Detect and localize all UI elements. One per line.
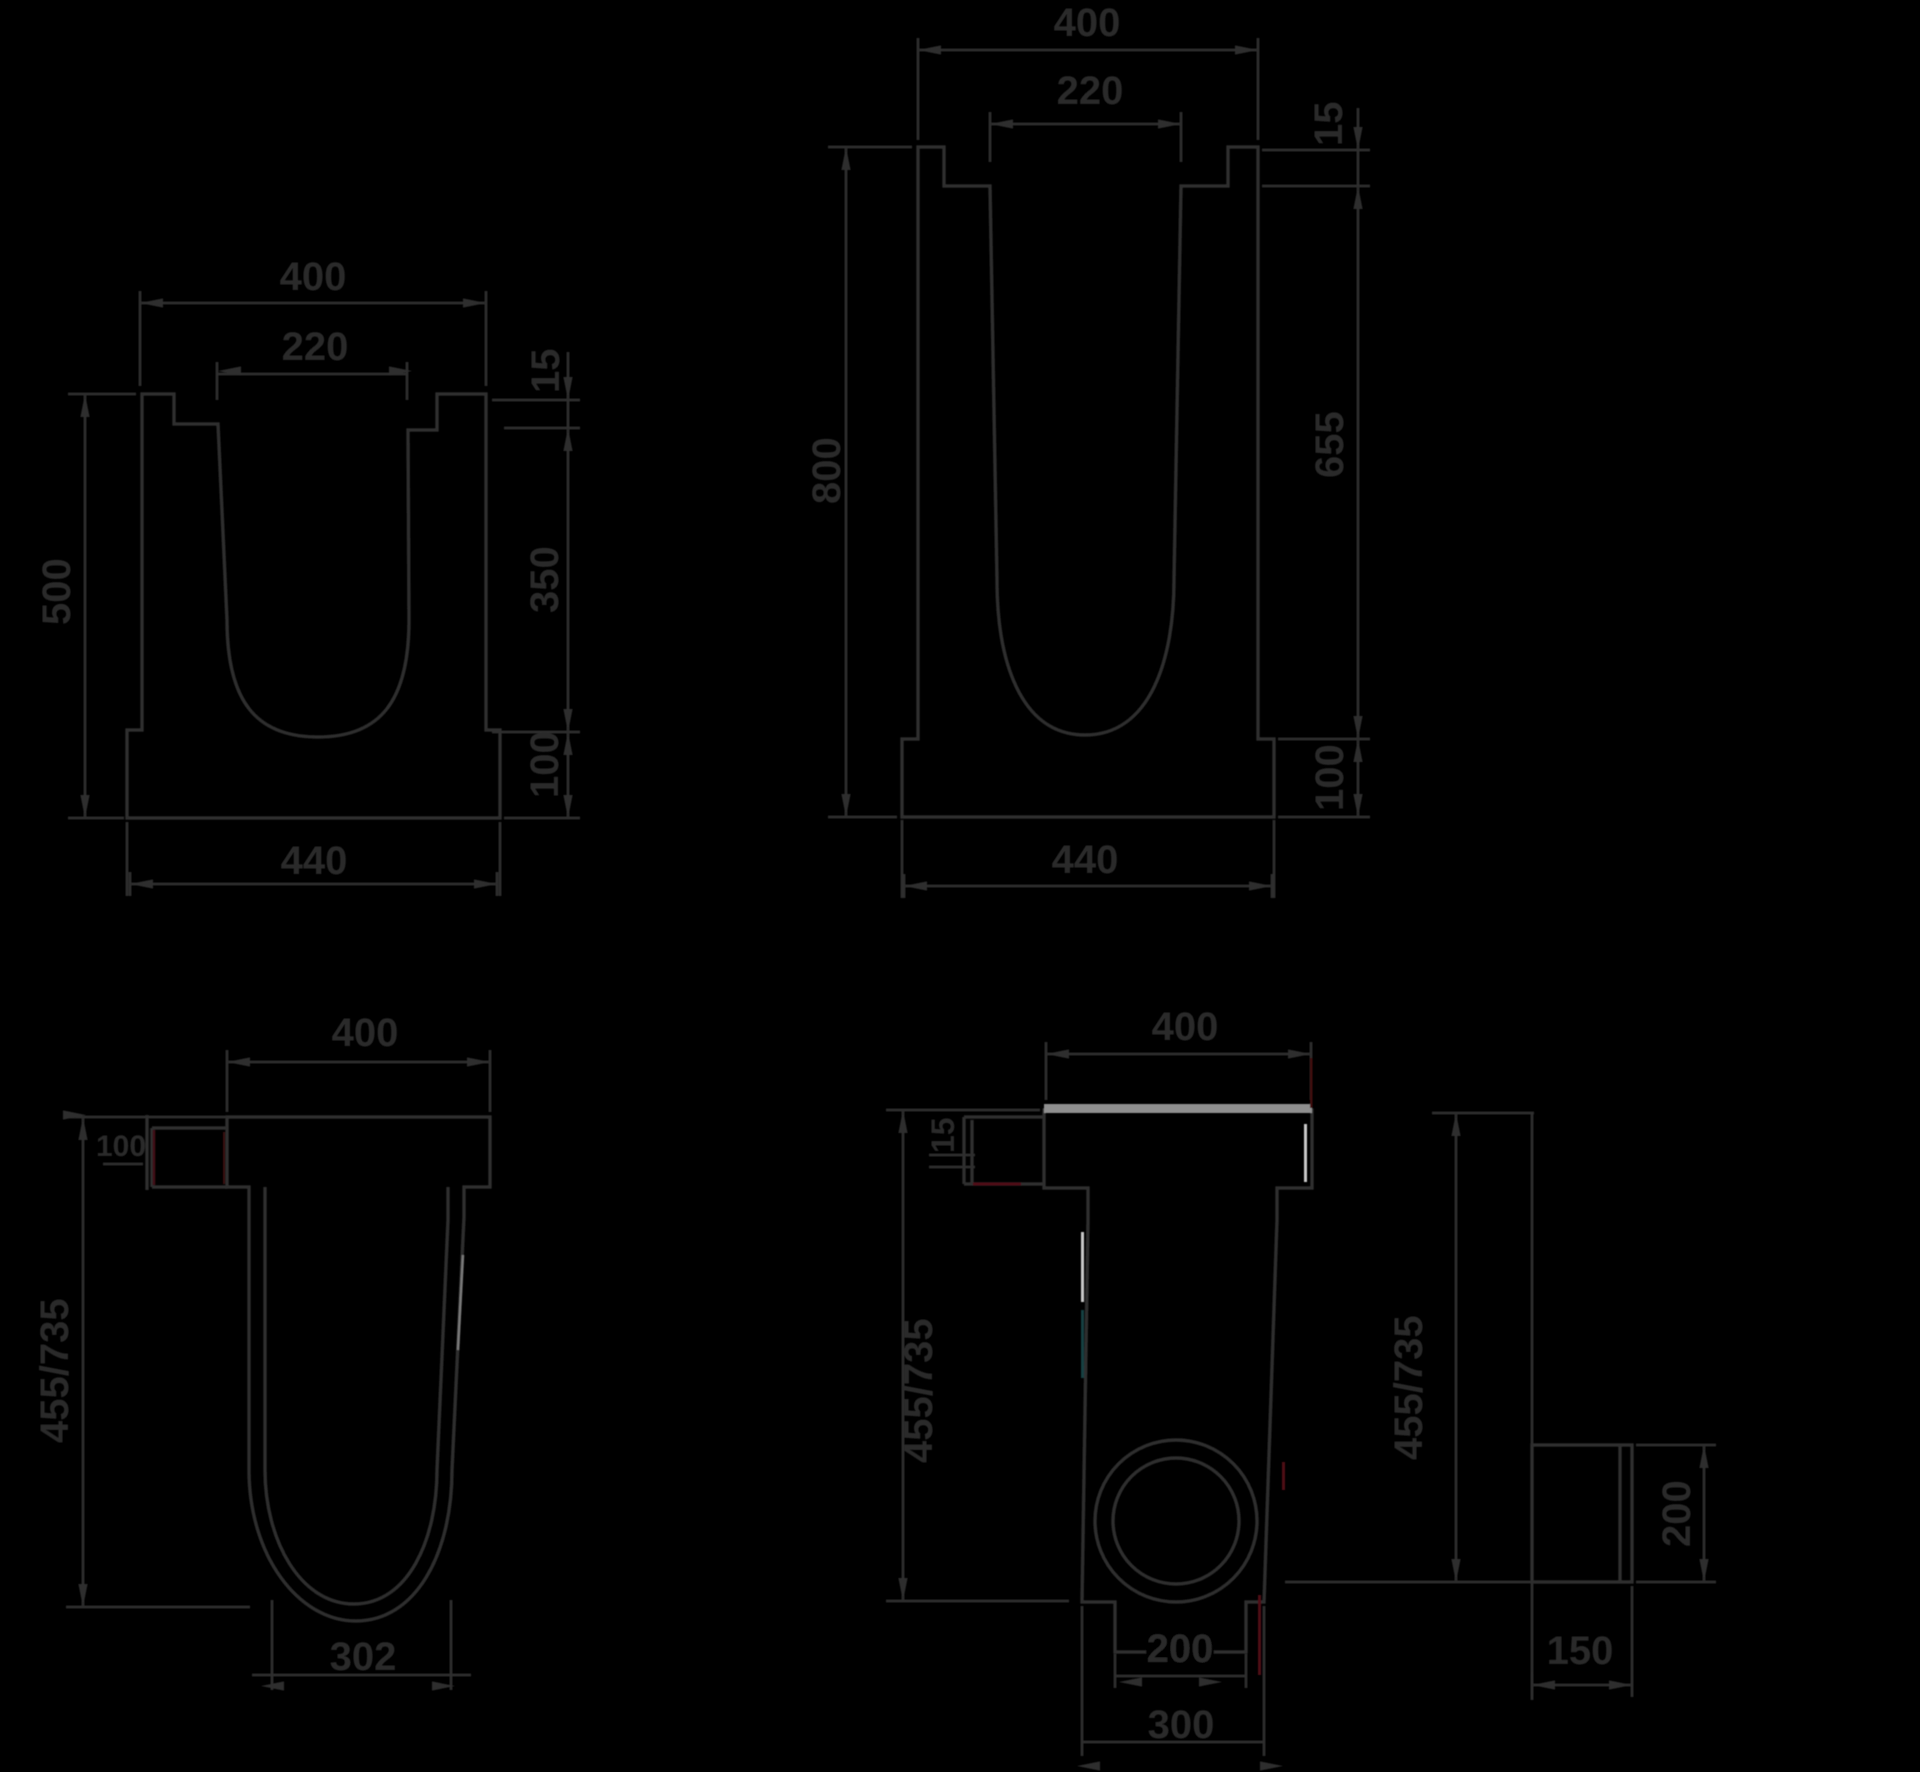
svg-text:655: 655 xyxy=(1308,411,1352,478)
svg-text:200: 200 xyxy=(1655,1480,1699,1547)
svg-text:400: 400 xyxy=(332,1011,399,1055)
svg-text:350: 350 xyxy=(523,546,567,613)
svg-text:302: 302 xyxy=(330,1635,397,1679)
svg-text:300: 300 xyxy=(1148,1703,1215,1747)
svg-text:100: 100 xyxy=(523,731,567,798)
svg-text:455/735: 455/735 xyxy=(1387,1315,1431,1460)
svg-text:440: 440 xyxy=(1052,838,1119,882)
svg-text:220: 220 xyxy=(282,325,349,369)
svg-text:15: 15 xyxy=(925,1117,961,1153)
svg-text:15: 15 xyxy=(524,349,568,394)
svg-text:400: 400 xyxy=(280,255,347,299)
svg-text:15: 15 xyxy=(1307,102,1351,147)
svg-text:800: 800 xyxy=(805,437,849,504)
svg-text:440: 440 xyxy=(281,839,348,883)
svg-text:455/735: 455/735 xyxy=(33,1298,77,1443)
svg-text:100: 100 xyxy=(1308,744,1352,811)
svg-text:400: 400 xyxy=(1152,1005,1219,1049)
svg-text:200: 200 xyxy=(1147,1627,1214,1671)
svg-text:220: 220 xyxy=(1057,69,1124,113)
svg-text:500: 500 xyxy=(35,558,79,625)
svg-text:400: 400 xyxy=(1054,1,1121,45)
svg-text:100: 100 xyxy=(96,1130,146,1163)
svg-text:150: 150 xyxy=(1547,1629,1614,1673)
svg-text:455/735: 455/735 xyxy=(897,1318,941,1463)
